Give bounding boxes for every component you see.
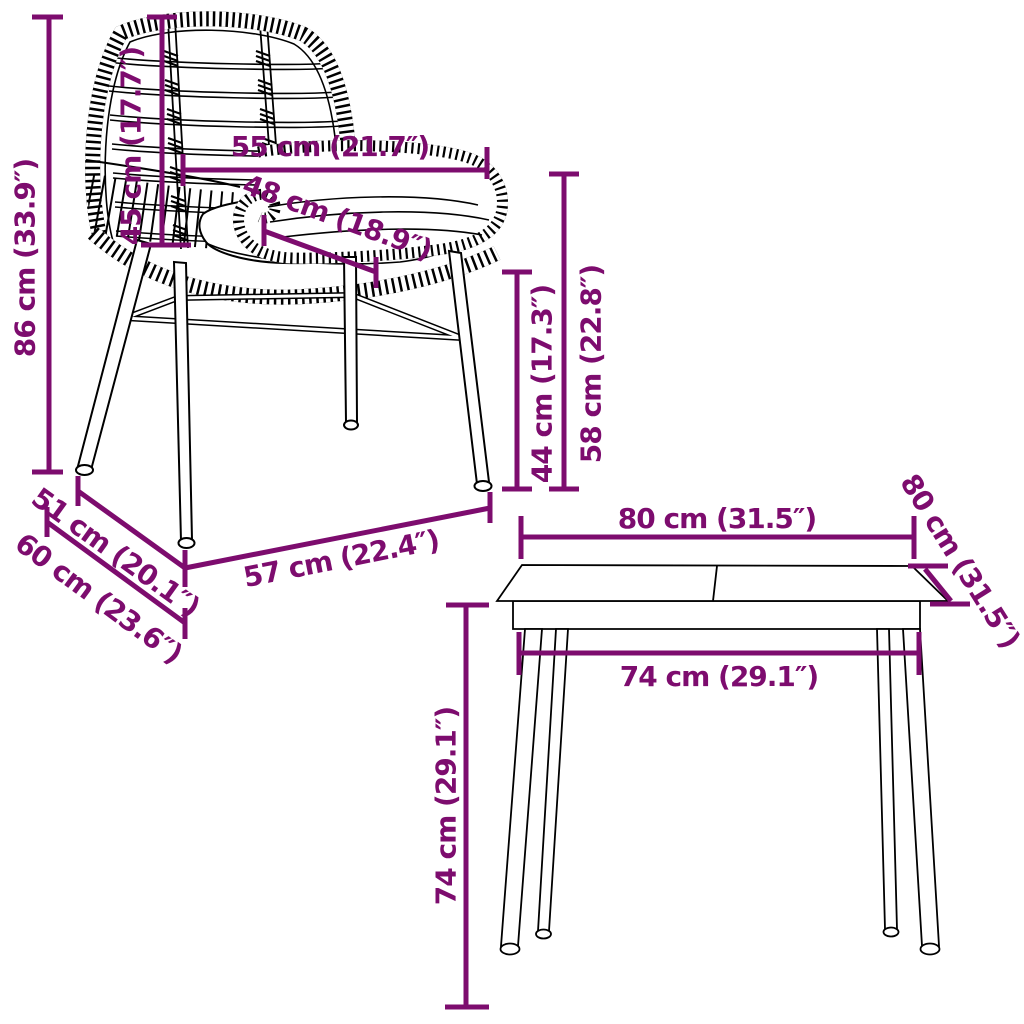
dim-chair-seat-height-label: 44 cm (17.3″): [525, 285, 558, 483]
dim-chair-backrest-height-label: 45 cm (17.7″): [114, 47, 147, 245]
dim-chair-armrest-height-label: 58 cm (22.8″): [574, 265, 607, 463]
dim-table-top-width-label: 80 cm (31.5″): [618, 502, 816, 535]
table-apron: [513, 601, 920, 629]
dim-table-height: 74 cm (29.1″): [429, 605, 489, 1007]
chair-foot-cap: [76, 465, 93, 475]
table-foot-cap: [501, 944, 520, 955]
dim-table-leg-span: 74 cm (29.1″): [519, 632, 919, 693]
dim-chair-height: 86 cm (33.9″): [8, 17, 63, 472]
dim-chair-height-label: 86 cm (33.9″): [8, 159, 41, 357]
dim-chair-front-depth: 57 cm (22.4″): [185, 492, 490, 594]
table-top: [497, 565, 948, 601]
dim-chair-seat-height: 44 cm (17.3″): [502, 272, 558, 489]
dim-chair-width-label: 55 cm (21.7″): [231, 130, 429, 163]
dim-table-height-label: 74 cm (29.1″): [429, 707, 462, 905]
chair-legs: [76, 240, 492, 548]
dim-chair-front-depth-label: 57 cm (22.4″): [241, 523, 442, 594]
diagram-canvas: 86 cm (33.9″) 45 cm (17.7″) 55 cm (21.7″…: [0, 0, 1024, 1024]
table-drawing: [497, 565, 948, 955]
chair-foot-cap: [179, 538, 195, 548]
chair-foot-cap: [344, 421, 358, 430]
table-foot-cap: [921, 944, 940, 955]
table-foot-cap: [884, 928, 899, 937]
chair-foot-cap: [475, 481, 492, 491]
dim-table-leg-span-label: 74 cm (29.1″): [620, 660, 818, 693]
dim-table-top-width: 80 cm (31.5″): [521, 502, 914, 559]
table-foot-cap: [536, 930, 551, 939]
diagram-page: 86 cm (33.9″) 45 cm (17.7″) 55 cm (21.7″…: [0, 0, 1024, 1024]
